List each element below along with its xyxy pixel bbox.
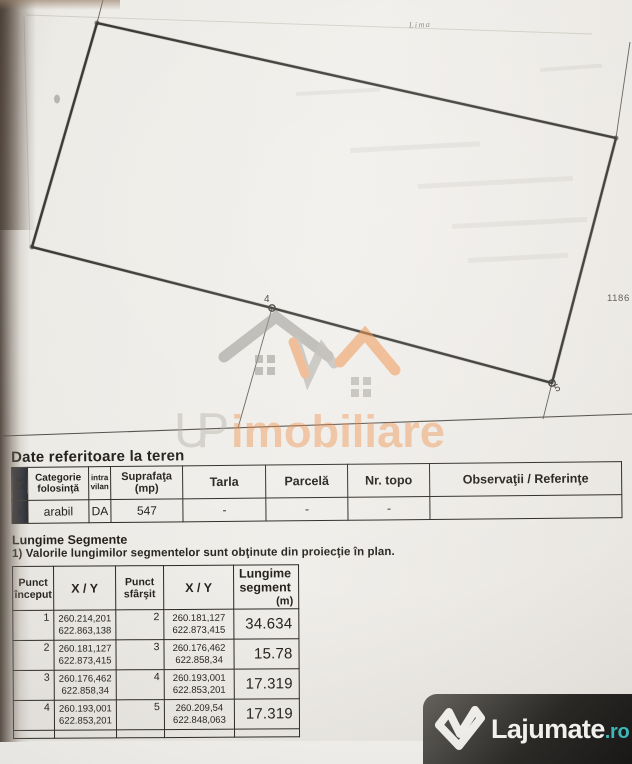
seg-header-lungime-label: Lungime segment — [235, 566, 295, 595]
empty-cell — [117, 730, 165, 738]
teren-header-intravilan: intra vilan — [89, 467, 111, 500]
teren-header-nr-topo: Nr. topo — [347, 463, 429, 497]
segment-row: 3 260.176,462 622.858,34 4 260.193,001 6… — [13, 669, 299, 701]
watermark-roof-gray — [224, 317, 328, 357]
teren-header-observatii: Observaţii / Referinţe — [429, 462, 621, 497]
seg-cell-end-xy: 260.193,001 622.853,201 — [164, 670, 234, 700]
parcel-outline-shadow — [32, 23, 616, 383]
teren-cell-tarla: - — [183, 498, 266, 522]
coord-x: 260.193,001 — [56, 703, 115, 716]
lajumate-wordmark: Lajumate .ro — [491, 714, 629, 745]
point-4-label: 4 — [264, 294, 270, 305]
lajumate-logo-badge: Lajumate .ro — [423, 694, 632, 764]
seg-cell-start-xy: 260.214,201 622.863,138 — [54, 610, 116, 640]
seg-cell-end-xy: 260.176,462 622.858,34 — [164, 640, 234, 670]
teren-header-tarla: Tarla — [182, 465, 265, 499]
teren-header-parcela: Parcelă — [265, 464, 347, 498]
watermark-text-up: UP — [174, 404, 230, 448]
handwritten-note: Lima — [408, 19, 432, 30]
teren-cell-intravilan: DA — [89, 500, 111, 523]
ink-smudge — [54, 95, 60, 104]
teren-header-categorie: Categorie folosinţă — [28, 467, 89, 501]
seg-header-lungime: Lungime segment (m) — [233, 565, 298, 610]
upimobiliare-watermark: UP imobiliare — [174, 317, 445, 448]
seg-cell-end: 5 — [116, 700, 164, 730]
seg-cell-length: 17.319 — [234, 699, 299, 729]
coord-y: 622.848,063 — [166, 715, 233, 728]
teren-cell-observatii — [430, 495, 622, 520]
coord-y: 622.858,34 — [166, 655, 233, 668]
coord-y: 622.858,34 — [56, 685, 115, 698]
seg-cell-end-xy: 260.181,127 622.873,415 — [164, 610, 234, 640]
seg-cell-end: 4 — [116, 670, 164, 700]
seg-cell-start-xy: 260.193,001 622.853,201 — [54, 700, 116, 730]
vertex-markers — [30, 21, 618, 386]
seg-cell-end: 2 — [116, 610, 164, 640]
watermark-stroke-orange — [293, 342, 305, 374]
parcel-outline — [32, 23, 616, 383]
parcel-plan-drawing: 4 5 Lima 1186 UP imobiliare — [0, 0, 632, 448]
segment-row: 4 260.193,001 622.853,201 5 260.209,54 6… — [13, 699, 299, 731]
map-frame-lines — [24, 15, 592, 248]
seg-cell-length: 15.78 — [234, 639, 299, 669]
coord-x: 260.214,201 — [55, 613, 114, 626]
teren-table: Nr Crt Categorie folosinţă intra vilan S… — [11, 461, 623, 524]
empty-cell — [235, 729, 300, 737]
lajumate-tld-text: .ro — [605, 721, 630, 744]
seg-header-lungime-unit: (m) — [235, 595, 295, 608]
teren-header-suprafata: Suprafaţa (mp) — [111, 466, 183, 500]
segment-row: 1 260.214,201 622.863,138 2 260.181,127 … — [13, 609, 299, 641]
coord-x: 260.181,127 — [55, 643, 114, 656]
watermark-windows-left — [255, 355, 275, 375]
seg-cell-end-xy: 260.209,54 622.848,063 — [164, 700, 234, 730]
watermark-roofs — [224, 317, 395, 378]
lajumate-brand-text: Lajumate — [491, 714, 605, 745]
seg-cell-start-xy: 260.176,462 622.858,34 — [54, 670, 116, 700]
watermark-text-imobiliare: imobiliare — [231, 406, 445, 448]
seg-cell-end: 3 — [116, 640, 164, 670]
page-top-shadow-edge — [0, 0, 120, 10]
thin-boundary-lines — [3, 0, 632, 436]
watermark-windows-right — [351, 377, 371, 397]
coord-y: 622.853,201 — [56, 715, 115, 728]
bleedthrough-smudges — [296, 64, 602, 263]
teren-section-title: Date referitoare la teren — [11, 447, 185, 466]
coord-x: 260.209,54 — [166, 702, 233, 715]
seg-cell-start-xy: 260.181,127 622.873,415 — [54, 640, 116, 670]
coord-y: 622.873,415 — [56, 655, 115, 668]
coord-x: 260.181,127 — [165, 612, 232, 625]
seg-cell-length: 34.634 — [234, 609, 299, 639]
segmente-table: Punct început X / Y Punct sfârşit X / Y … — [12, 564, 300, 739]
coord-x: 260.193,001 — [166, 672, 233, 685]
segmente-header-row: Punct început X / Y Punct sfârşit X / Y … — [13, 565, 299, 611]
teren-cell-nr-topo: - — [348, 496, 430, 520]
segmente-note: 1) Valorile lungimilor segmentelor sunt … — [12, 545, 395, 559]
teren-cell-suprafata: 547 — [111, 499, 183, 523]
segmente-empty-row — [14, 729, 300, 739]
teren-cell-categorie: arabil — [28, 500, 89, 524]
coord-y: 622.853,201 — [166, 685, 233, 698]
handwritten-number: 1186 — [607, 293, 630, 304]
coord-y: 622.873,415 — [165, 625, 232, 638]
seg-header-punct-sfarsit: Punct sfârşit — [116, 566, 164, 611]
teren-cell-parcela: - — [266, 497, 348, 521]
coord-x: 260.176,462 — [56, 673, 115, 686]
seg-header-xy-start: X / Y — [54, 566, 116, 611]
empty-cell — [165, 730, 235, 738]
page-left-shadow-top — [0, 0, 44, 230]
seg-cell-length: 17.319 — [234, 669, 299, 699]
seg-header-xy-end: X / Y — [164, 565, 234, 610]
teren-data-row: 1 arabil DA 547 - - - — [12, 495, 622, 524]
scanned-cadastral-document: 4 5 Lima 1186 UP imobiliare Dat — [0, 0, 632, 764]
point-5-label: 5 — [553, 382, 563, 394]
coord-y: 622.863,138 — [55, 625, 114, 638]
empty-cell — [55, 730, 117, 738]
coord-x: 260.176,462 — [165, 642, 232, 655]
lajumate-heart-icon — [431, 701, 489, 757]
segment-row: 2 260.181,127 622.873,415 3 260.176,462 … — [13, 639, 299, 671]
